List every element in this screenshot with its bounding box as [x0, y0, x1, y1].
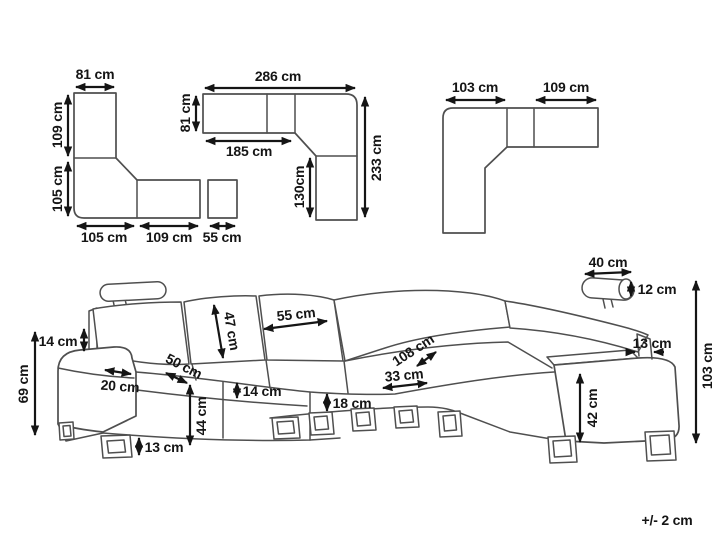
dim-label: 185 cm	[226, 143, 272, 159]
sofa-front-view: 14 cm 69 cm 20 cm 50 cm 47 cm 13 cm 44 c…	[15, 254, 715, 528]
dim-label: 286 cm	[255, 68, 301, 84]
headrest-pillow	[100, 281, 167, 301]
dim-arrow	[585, 272, 631, 274]
dim-headrest-depth: 12 cm	[631, 281, 676, 297]
diagram-canvas: 81 cm 109 cm 105 cm 105 cm 109 cm 55 cm …	[0, 0, 720, 540]
dim-label: 105 cm	[49, 166, 65, 212]
sofa-leg	[351, 408, 376, 431]
dim-label: 81 cm	[76, 66, 115, 82]
back-cushion-right	[505, 301, 648, 352]
dim-backrest-thickness: 13 cm	[626, 335, 671, 352]
dim-bottom-mid: 109 cm	[140, 226, 198, 245]
top-view-left-ottoman	[208, 180, 237, 218]
seat-cushion-bottom-line	[137, 390, 307, 406]
dim-right-width: 109 cm	[536, 79, 596, 100]
dim-label: 44 cm	[193, 397, 209, 436]
dim-label: 18 cm	[333, 395, 372, 411]
dim-label: 109 cm	[543, 79, 589, 95]
dim-label: 130cm	[291, 166, 307, 209]
dim-label: 81 cm	[177, 94, 193, 133]
sofa-leg	[645, 431, 676, 461]
dim-corner-seat-width: 33 cm	[383, 365, 427, 388]
dim-label: 109 cm	[49, 102, 65, 148]
dim-label: 33 cm	[384, 365, 424, 384]
dim-clearance: 18 cm	[327, 394, 371, 411]
dim-inner-right: 130cm	[291, 158, 310, 217]
top-view-right: 103 cm 109 cm	[443, 79, 598, 233]
sofa-leg	[272, 417, 300, 439]
sofa-leg	[394, 406, 419, 428]
dim-bottom-left: 105 cm	[77, 226, 134, 245]
dim-total-width: 286 cm	[205, 68, 355, 88]
right-headrest	[581, 277, 634, 308]
dim-label: 13 cm	[633, 335, 672, 351]
dim-inner-bottom: 185 cm	[206, 141, 291, 159]
dim-label: 103 cm	[699, 343, 715, 389]
top-view-left: 81 cm 109 cm 105 cm 105 cm 109 cm 55 cm	[49, 66, 241, 245]
dim-label: 13 cm	[145, 439, 184, 455]
headrest-stem	[603, 299, 613, 308]
dim-total-height: 103 cm	[696, 281, 715, 443]
dim-label: 233 cm	[368, 135, 384, 181]
dim-label: 12 cm	[638, 281, 677, 297]
dim-seat-floor-height: 44 cm	[190, 385, 209, 445]
sofa-dimension-diagram: 81 cm 109 cm 105 cm 105 cm 109 cm 55 cm …	[0, 0, 720, 540]
tolerance-label: +/- 2 cm	[642, 512, 693, 528]
dim-left-width: 103 cm	[446, 79, 505, 100]
dim-arm-floor-height: 69 cm	[15, 332, 35, 435]
dim-label: 40 cm	[589, 254, 628, 270]
dim-label: 14 cm	[39, 333, 78, 349]
dim-top-width: 81 cm	[76, 66, 115, 87]
dim-label: 69 cm	[15, 365, 31, 404]
right-armrest	[554, 358, 679, 443]
dim-bottom-right: 55 cm	[203, 226, 242, 245]
dim-headrest-height: 14 cm	[39, 329, 84, 351]
dim-label: 14 cm	[243, 383, 282, 399]
dim-seat-thickness: 14 cm	[237, 383, 281, 399]
sofa-leg	[438, 411, 462, 437]
dim-side-upper: 109 cm	[49, 95, 68, 156]
dim-depth: 81 cm	[177, 94, 196, 133]
sofa-leg	[101, 435, 132, 458]
dim-label: 20 cm	[100, 377, 140, 396]
dim-side-lower: 105 cm	[49, 162, 68, 216]
dim-total-height: 233 cm	[365, 97, 384, 217]
top-view-right-outline	[443, 108, 598, 233]
dim-label: 42 cm	[584, 389, 600, 428]
dim-headrest-width: 40 cm	[585, 254, 631, 274]
sofa-leg	[548, 436, 577, 463]
dim-label: 109 cm	[146, 229, 192, 245]
dim-label: 55 cm	[203, 229, 242, 245]
sofa-leg	[309, 412, 334, 435]
tolerance-note: +/- 2 cm	[642, 512, 693, 528]
dim-label: 105 cm	[81, 229, 127, 245]
sofa-leg	[59, 422, 74, 440]
dim-label: 103 cm	[452, 79, 498, 95]
dim-leg-height: 13 cm	[139, 438, 183, 455]
